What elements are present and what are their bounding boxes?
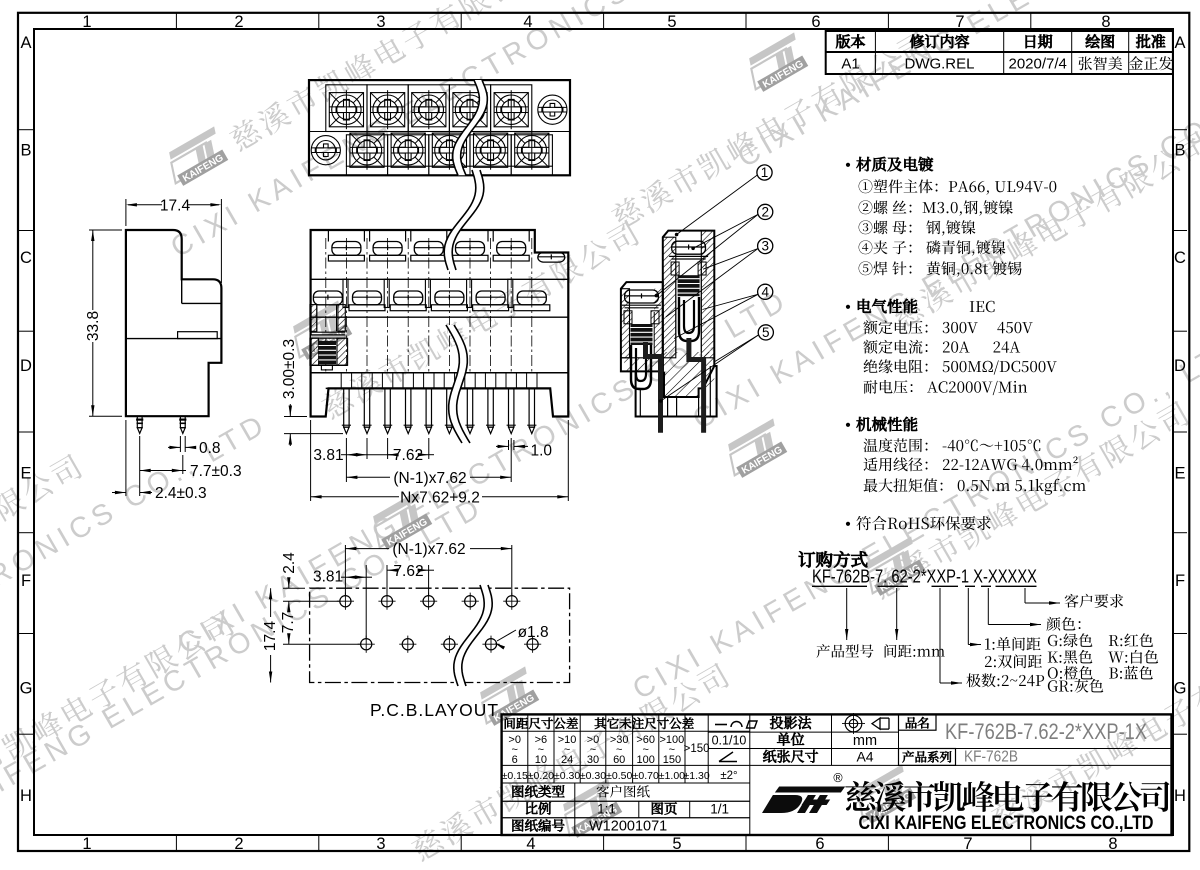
svg-text:7.62: 7.62 [393, 447, 423, 464]
svg-text:F: F [1175, 572, 1185, 590]
svg-text:±0.30: ±0.30 [554, 770, 580, 782]
svg-text:2.4±0.3: 2.4±0.3 [155, 485, 207, 502]
svg-text:B: B [1174, 142, 1185, 160]
svg-text:8: 8 [1101, 13, 1110, 31]
svg-text:DWG.REL: DWG.REL [904, 56, 974, 73]
svg-text:7: 7 [963, 835, 972, 853]
svg-text:(N-1)x7.62: (N-1)x7.62 [392, 541, 465, 558]
svg-text:C: C [20, 249, 32, 267]
svg-text:A4: A4 [856, 749, 873, 765]
svg-text:W12001071: W12001071 [589, 819, 667, 835]
svg-text:10: 10 [535, 754, 547, 766]
svg-text:A1: A1 [841, 56, 859, 73]
svg-text:2: 2 [234, 835, 243, 853]
svg-text:0.8: 0.8 [199, 440, 221, 457]
svg-text:100: 100 [637, 754, 655, 766]
svg-text:3.81: 3.81 [313, 447, 343, 464]
svg-text:6: 6 [512, 754, 518, 766]
svg-text:1: 1 [82, 835, 91, 853]
svg-text:2: 2 [234, 13, 243, 31]
svg-text:150: 150 [663, 754, 681, 766]
svg-text:D: D [20, 357, 32, 375]
svg-text:3.00±0.3: 3.00±0.3 [281, 339, 298, 399]
svg-text:2: 2 [761, 205, 769, 220]
svg-text:H: H [1174, 787, 1186, 805]
svg-text:5: 5 [667, 13, 676, 31]
svg-text:7.7±0.3: 7.7±0.3 [190, 463, 242, 480]
svg-text:H: H [20, 787, 32, 805]
svg-text:60: 60 [613, 754, 625, 766]
svg-text:33.8: 33.8 [85, 311, 102, 341]
svg-text:P.C.B.LAYOUT: P.C.B.LAYOUT [370, 700, 499, 720]
svg-text:±0.50: ±0.50 [606, 770, 632, 782]
svg-text:Nx7.62+9.2: Nx7.62+9.2 [400, 490, 480, 507]
svg-text:±0.30: ±0.30 [580, 770, 606, 782]
svg-text:2.4: 2.4 [281, 552, 298, 574]
svg-text:G: G [20, 680, 33, 698]
svg-text:C: C [1174, 249, 1186, 267]
svg-text:3: 3 [376, 835, 385, 853]
svg-text:30: 30 [587, 754, 599, 766]
svg-text:G: G [1174, 680, 1187, 698]
svg-text:0.1/10: 0.1/10 [712, 734, 747, 748]
svg-text:6: 6 [815, 835, 824, 853]
svg-text:KF-762B-7. 62-2*XXP-1 X-XXXXX: KF-762B-7. 62-2*XXP-1 X-XXXXX [812, 566, 1037, 587]
svg-text:F: F [21, 572, 31, 590]
svg-text:D: D [1174, 357, 1186, 375]
svg-text:5: 5 [762, 325, 770, 340]
svg-text:>150: >150 [684, 743, 710, 755]
svg-text:±2°: ±2° [720, 770, 737, 782]
svg-text:24: 24 [561, 754, 573, 766]
svg-text:3.81: 3.81 [313, 569, 343, 586]
svg-text:5: 5 [672, 835, 681, 853]
svg-text:3: 3 [376, 13, 385, 31]
svg-text:7.62: 7.62 [393, 563, 423, 580]
svg-text:KF-762B: KF-762B [964, 749, 1018, 766]
svg-text:B: B [20, 142, 31, 160]
svg-text:6: 6 [811, 13, 820, 31]
svg-text:4: 4 [526, 835, 535, 853]
svg-text:1: 1 [82, 13, 91, 31]
svg-text:CIXI KAIFENG ELECTRONICS CO.,L: CIXI KAIFENG ELECTRONICS CO.,LTD [859, 812, 1154, 834]
svg-text:±1.30: ±1.30 [683, 770, 709, 782]
svg-text:ø1.8: ø1.8 [518, 624, 549, 641]
svg-text:±0.20: ±0.20 [528, 770, 554, 782]
svg-text:1:1: 1:1 [597, 802, 616, 817]
svg-text:17.4: 17.4 [160, 198, 191, 215]
svg-text:1/1: 1/1 [710, 802, 729, 817]
svg-text:8: 8 [1108, 835, 1117, 853]
svg-text:±1.00: ±1.00 [659, 770, 685, 782]
svg-text:1.0: 1.0 [531, 443, 553, 460]
svg-text:3: 3 [761, 239, 769, 254]
svg-text:±0.70: ±0.70 [633, 770, 659, 782]
svg-text:KF-762B-7.62-2*XXP-1X: KF-762B-7.62-2*XXP-1X [945, 719, 1147, 744]
svg-text:E: E [20, 464, 31, 482]
svg-text:7.7: 7.7 [280, 612, 297, 634]
svg-text:(N-1)x7.62: (N-1)x7.62 [393, 470, 466, 487]
svg-text:7: 7 [955, 13, 964, 31]
svg-text:2020/7/4: 2020/7/4 [1009, 56, 1067, 73]
svg-text:A: A [20, 34, 31, 52]
svg-text:4: 4 [761, 284, 769, 299]
svg-text:17.4: 17.4 [262, 621, 279, 652]
svg-text:®: ® [833, 771, 843, 785]
svg-text:mm: mm [853, 733, 877, 749]
svg-text:A: A [1174, 34, 1185, 52]
svg-text:E: E [1174, 464, 1185, 482]
svg-text:±0.15: ±0.15 [502, 770, 528, 782]
svg-text:1: 1 [761, 165, 769, 180]
svg-text:4: 4 [523, 13, 532, 31]
